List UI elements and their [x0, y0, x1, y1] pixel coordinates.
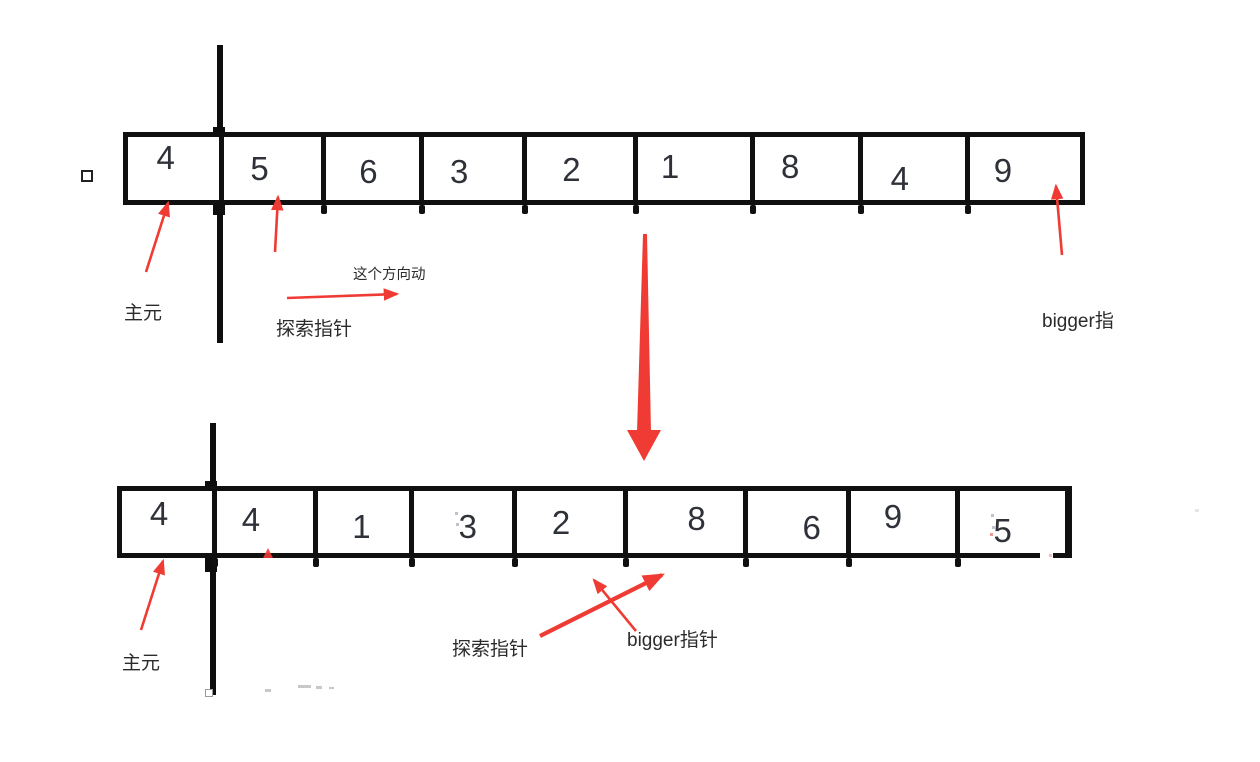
cell-value: 6	[359, 155, 377, 188]
cell-value: 4	[150, 497, 168, 530]
array-cell: 4	[217, 491, 318, 553]
top-probe-arrow-icon	[275, 197, 278, 252]
array-cell: 6	[326, 137, 424, 200]
bottom-probe-arrow-icon	[540, 575, 662, 636]
array-cell: 4	[122, 491, 217, 553]
direction-label: 这个方向动	[353, 267, 426, 284]
stray-dot	[991, 514, 994, 517]
cell-value: 4	[891, 162, 909, 195]
array-cell: 2	[527, 137, 638, 200]
array-cell: 3	[424, 137, 527, 200]
array-cell: 1	[638, 137, 754, 200]
array-bottom: 4 4 1 3 2 8 6	[117, 486, 1072, 558]
big-down-arrow-head-icon	[627, 430, 661, 461]
stray-dot	[455, 512, 458, 515]
array-cell: 4	[128, 137, 224, 200]
array-cell: 5	[224, 137, 325, 200]
array-cell: 6	[748, 491, 851, 553]
cell-value: 9	[994, 154, 1012, 187]
stray-dot	[1195, 509, 1199, 512]
cell-value: 3	[459, 510, 477, 543]
bottom-pivot-arrow-icon	[141, 561, 163, 630]
array-cell: 4	[863, 137, 970, 200]
small-square-marker	[81, 170, 93, 182]
bigger-pointer-label-bottom: bigger指针	[627, 630, 718, 653]
cell-value: 4	[157, 141, 175, 174]
stray-dot	[992, 526, 995, 529]
stray-mark	[298, 685, 311, 688]
array-cell: 8	[628, 491, 747, 553]
probe-pointer-label-top: 探索指针	[276, 319, 352, 342]
cell-value: 2	[552, 506, 570, 539]
array-cell: 9	[970, 137, 1080, 200]
probe-pointer-label-bottom: 探索指针	[452, 639, 528, 662]
array-cell: 9	[851, 491, 961, 553]
cell-value: 5	[250, 152, 268, 185]
array-cell: 5	[960, 491, 1065, 553]
cell-value: 2	[562, 153, 580, 186]
bottom-bigger-arrow-icon	[594, 580, 636, 631]
array-cell: 2	[517, 491, 629, 553]
bigger-pointer-label-top: bigger指	[1042, 311, 1114, 334]
cell-value: 9	[884, 500, 902, 533]
pivot-label-bottom: 主元	[122, 653, 160, 676]
top-pivot-arrow-icon	[146, 203, 168, 272]
cell-value: 4	[242, 503, 260, 536]
array-cell: 1	[318, 491, 414, 553]
array-top: 4 5 6 3 2 1 8	[123, 132, 1085, 205]
stray-mark	[265, 689, 271, 692]
pivot-label-top: 主元	[124, 303, 162, 326]
stray-dot	[456, 523, 459, 526]
line-endpoint-handle	[205, 689, 213, 697]
stray-mark	[329, 687, 334, 689]
big-down-arrow-icon	[637, 234, 651, 432]
stray-red-dot	[990, 533, 993, 536]
cell-value: 1	[661, 150, 679, 183]
array-cell: 8	[755, 137, 863, 200]
whiteboard-canvas: 4 5 6 3 2 1 8	[0, 0, 1260, 762]
cell-value: 5	[993, 514, 1011, 547]
cell-value: 8	[687, 502, 705, 535]
direction-arrow-icon	[287, 294, 397, 298]
cell-value: 8	[781, 150, 799, 183]
array-cell: 3	[414, 491, 517, 553]
cell-value: 6	[803, 511, 821, 544]
cell-value: 3	[450, 155, 468, 188]
stray-red-dot	[1049, 554, 1052, 557]
cell-value: 1	[352, 510, 370, 543]
stray-mark	[316, 686, 322, 689]
